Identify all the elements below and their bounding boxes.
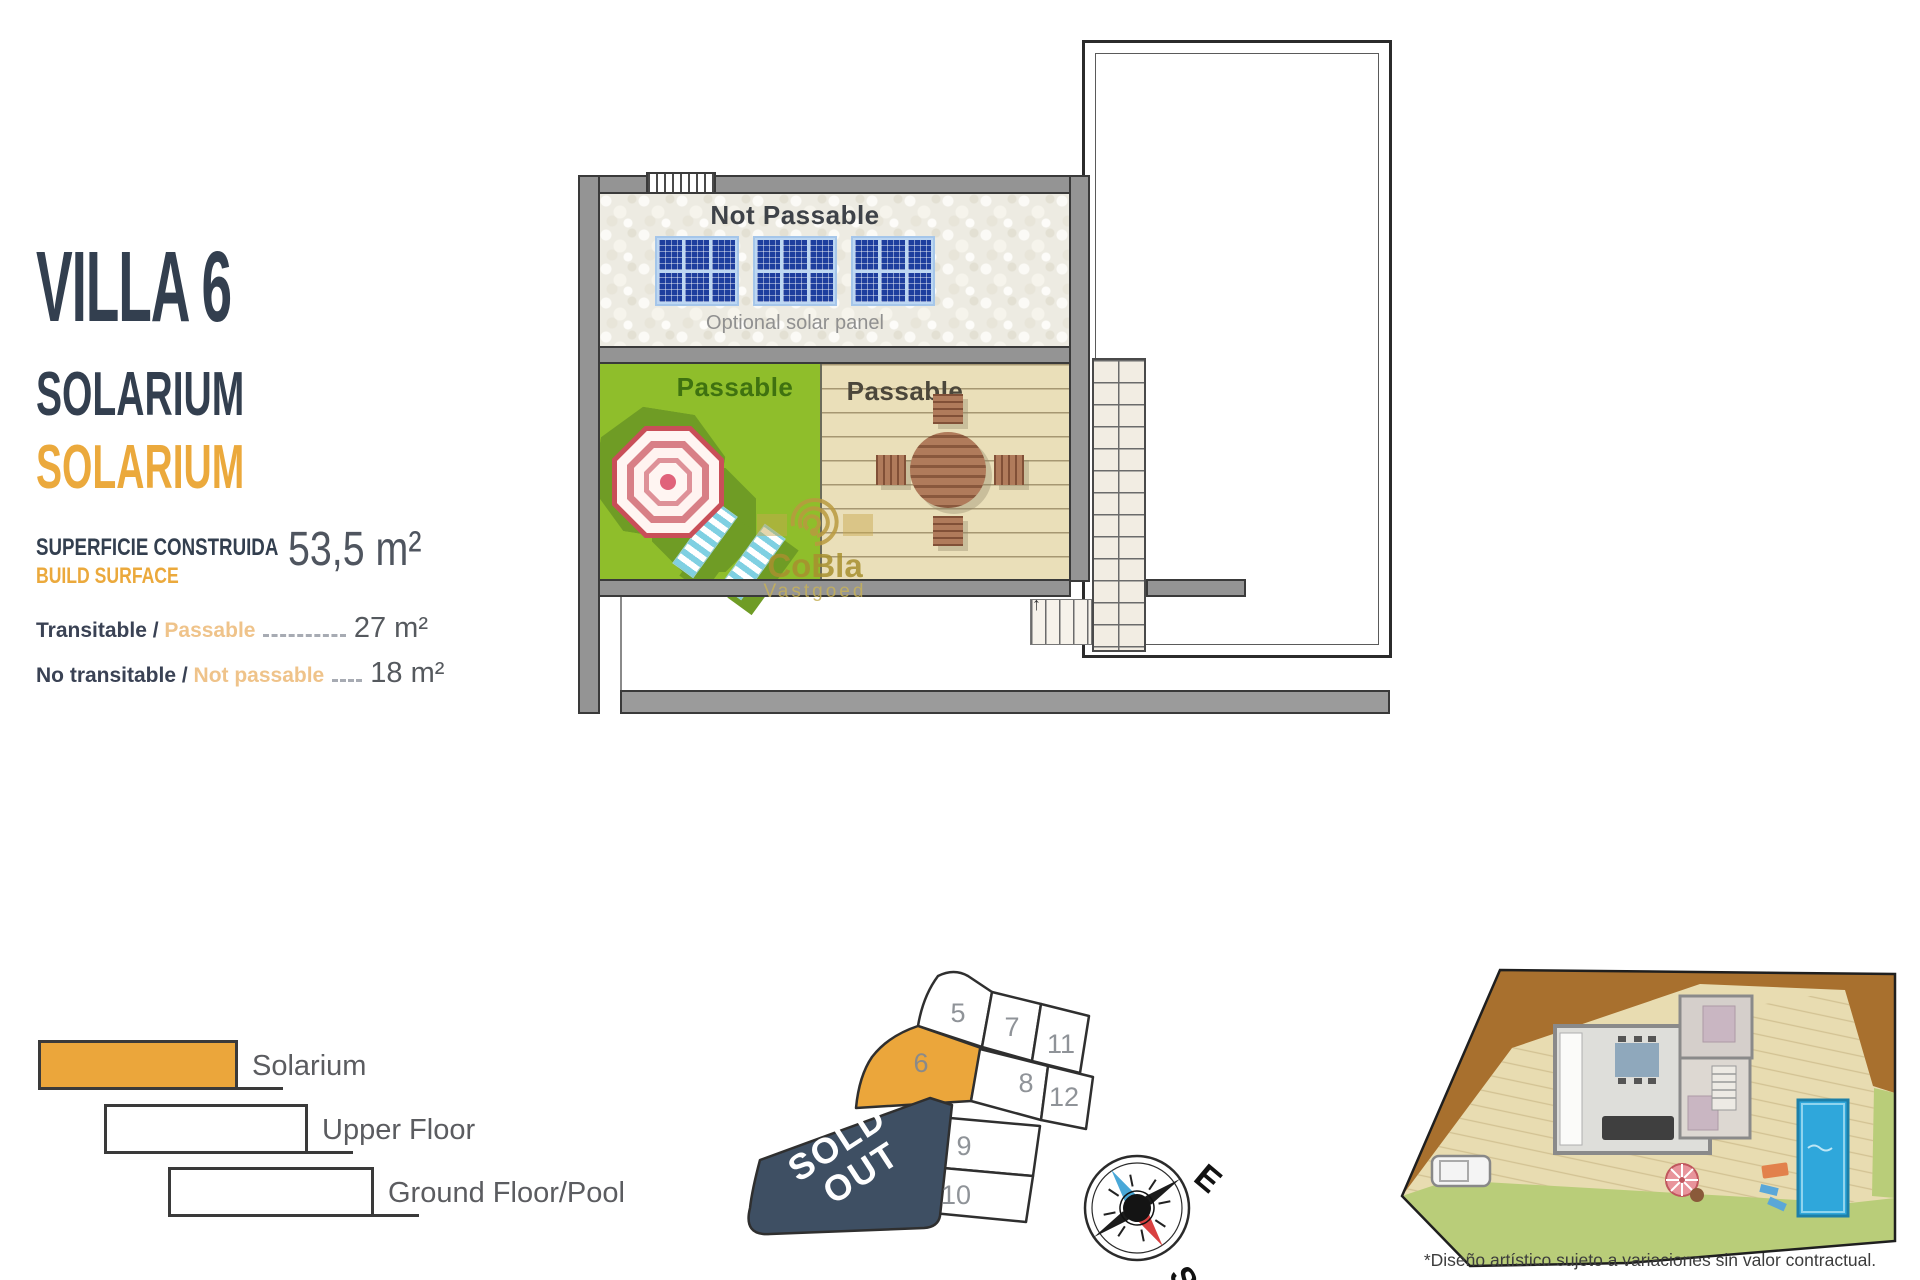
umbrella-pole-dot <box>660 474 676 490</box>
deck-table <box>910 432 986 508</box>
build-surface-value: 53,5 m² <box>288 522 451 577</box>
metric-not-passable: No transitable / Not passable 18 m² <box>36 657 428 690</box>
site-sofa <box>1602 1116 1674 1140</box>
build-surface-label-en: BUILD SURFACE <box>36 563 296 589</box>
solar-cell <box>685 273 708 303</box>
not-passable-label: Not Passable <box>645 200 945 231</box>
watermark-brand: CoBla <box>745 551 885 581</box>
legend-swatch-upper-floor <box>104 1104 308 1154</box>
solar-cell <box>757 273 780 303</box>
solar-cell <box>810 240 833 270</box>
watermark: CoBla Vastgoed <box>745 492 885 603</box>
roof-vent-hatch <box>646 172 716 194</box>
solar-cell <box>659 240 682 270</box>
subtitle: SOLARIUM <box>36 359 466 430</box>
site-car <box>1432 1156 1490 1186</box>
site-pool <box>1798 1100 1848 1216</box>
dashed-leader <box>332 679 362 682</box>
wall-right <box>1069 175 1090 582</box>
watermark-arcs <box>793 500 837 544</box>
legend-swatch-solarium <box>38 1040 238 1090</box>
watermark-dot <box>810 528 818 536</box>
watermark-bar <box>843 514 873 536</box>
green-passable-label: Passable <box>660 372 810 403</box>
deck-chair <box>933 516 963 546</box>
solar-cell <box>855 273 878 303</box>
watermark-subbrand: Vastgoed <box>745 581 885 603</box>
solar-cell <box>881 240 904 270</box>
solar-cell <box>712 240 735 270</box>
plan-sheet: VILLA 6 SOLARIUM SOLARIUM SUPERFICIE CON… <box>0 0 1920 1280</box>
legend-label-ground-floor: Ground Floor/Pool <box>388 1177 625 1210</box>
deck-chair <box>994 455 1024 485</box>
plot-number: 9 <box>956 1131 971 1161</box>
wall-bottom-ext <box>1146 579 1246 597</box>
page-title: VILLA 6 <box>36 230 466 345</box>
solar-cell <box>685 240 708 270</box>
surface-metrics: Transitable / Passable 27 m² No transita… <box>36 612 428 702</box>
build-surface-label-es: SUPERFICIE CONSTRUIDA <box>36 534 296 562</box>
plot-number: 5 <box>950 998 965 1028</box>
wall-divider <box>598 346 1071 364</box>
metric-value: 27 m² <box>354 612 428 645</box>
solar-cell <box>783 240 806 270</box>
site-side-table <box>1690 1188 1704 1202</box>
dashed-leader <box>263 634 345 637</box>
plot-map: 5 7 11 6 8 12 9 10 SOLD OUT <box>600 950 1100 1280</box>
solar-panel <box>753 236 837 306</box>
metric-value: 18 m² <box>370 657 444 690</box>
site-kitchen-strip <box>1560 1033 1582 1145</box>
solar-cell <box>908 240 931 270</box>
legend-leader <box>238 1087 283 1090</box>
metric-label-es: Transitable / <box>36 619 164 643</box>
site-plan-render <box>1390 948 1910 1278</box>
plot-number: 12 <box>1049 1082 1079 1112</box>
legend-label-upper-floor: Upper Floor <box>322 1114 475 1147</box>
lower-terrace <box>620 597 1390 690</box>
compass-east-label: E <box>1187 1157 1228 1201</box>
solar-panel <box>851 236 935 306</box>
compass-south-label: S <box>1161 1260 1205 1280</box>
plot-number: 8 <box>1018 1068 1033 1098</box>
deck-chair <box>876 455 906 485</box>
deck-chair <box>933 394 963 424</box>
subtitle-accent: SOLARIUM <box>36 432 466 503</box>
plot-number: 6 <box>913 1048 928 1078</box>
info-panel: VILLA 6 SOLARIUM SOLARIUM SUPERFICIE CON… <box>36 230 466 503</box>
site-dining-table <box>1615 1043 1659 1077</box>
solar-panel <box>655 236 739 306</box>
plot-number: 10 <box>941 1180 971 1210</box>
metric-label-en: Not passable <box>194 664 325 688</box>
watermark-logo-icon <box>755 492 875 546</box>
compass-rose: E S <box>1068 1138 1228 1280</box>
solar-cell <box>757 240 780 270</box>
plot-number: 7 <box>1004 1012 1019 1042</box>
terrace-parapet <box>620 690 1390 714</box>
solar-cell <box>855 240 878 270</box>
wall-left <box>578 175 600 714</box>
solar-cell <box>881 273 904 303</box>
parasol-umbrella <box>612 426 724 538</box>
metric-label-es: No transitable / <box>36 664 194 688</box>
solar-cell <box>783 273 806 303</box>
site-bed <box>1703 1006 1735 1042</box>
solar-cell <box>810 273 833 303</box>
solar-cell <box>908 273 931 303</box>
legend-label-solarium: Solarium <box>252 1050 366 1083</box>
watermark-bar <box>757 514 787 536</box>
plot-number: 11 <box>1047 1029 1075 1059</box>
legend-swatch-ground-floor <box>168 1167 374 1217</box>
stair-direction-arrow: ↑ <box>1032 594 1041 615</box>
site-plan-footnote: *Diseño artístico sujeto a variaciones s… <box>1390 1250 1910 1271</box>
solar-cell <box>659 273 682 303</box>
site-lawn-right <box>1872 1088 1895 1198</box>
site-stairs <box>1712 1066 1736 1110</box>
metric-label-en: Passable <box>164 619 255 643</box>
legend-leader <box>308 1151 353 1154</box>
solar-cell <box>712 273 735 303</box>
metric-passable: Transitable / Passable 27 m² <box>36 612 428 645</box>
solar-caption: Optional solar panel <box>645 312 945 335</box>
legend-leader <box>374 1214 419 1217</box>
